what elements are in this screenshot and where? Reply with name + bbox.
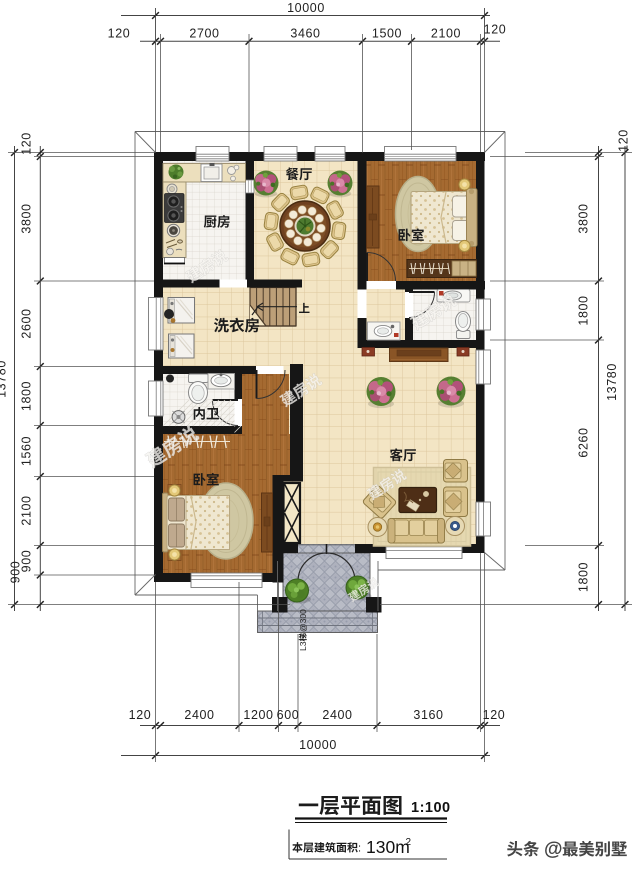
svg-text:120: 120: [484, 23, 507, 37]
svg-text:13780: 13780: [0, 360, 9, 398]
svg-text:2700: 2700: [189, 27, 219, 41]
svg-text:2100: 2100: [20, 495, 34, 525]
svg-text:120: 120: [20, 132, 34, 155]
svg-text:3160: 3160: [413, 708, 443, 722]
svg-text:120: 120: [617, 129, 631, 152]
svg-text:@: @: [544, 839, 563, 860]
svg-text:1800: 1800: [20, 381, 34, 411]
svg-text:1500: 1500: [372, 27, 402, 41]
svg-text:1800: 1800: [577, 295, 591, 325]
svg-text:1800: 1800: [577, 562, 591, 592]
svg-text:3800: 3800: [577, 203, 591, 233]
svg-text:900: 900: [9, 561, 23, 584]
svg-text:2100: 2100: [431, 27, 461, 41]
svg-text:10000: 10000: [299, 738, 337, 752]
svg-text:2: 2: [406, 837, 412, 848]
svg-text:2400: 2400: [322, 708, 352, 722]
svg-text:120: 120: [129, 708, 152, 722]
svg-text:10000: 10000: [287, 1, 325, 15]
svg-text:1200: 1200: [243, 708, 273, 722]
svg-text:120: 120: [108, 27, 131, 41]
svg-text::: :: [358, 843, 361, 855]
svg-text:@300: @300: [298, 609, 308, 632]
svg-text:120: 120: [483, 708, 506, 722]
svg-text:130m: 130m: [366, 837, 410, 857]
svg-text:1:100: 1:100: [411, 800, 451, 816]
svg-text:2600: 2600: [20, 308, 34, 338]
svg-text:2400: 2400: [184, 708, 214, 722]
svg-text:13780: 13780: [605, 363, 619, 401]
svg-text:3800: 3800: [20, 203, 34, 233]
svg-text:600: 600: [277, 708, 300, 722]
svg-text:3460: 3460: [290, 27, 320, 41]
svg-text:1560: 1560: [20, 436, 34, 466]
svg-text:L3: L3: [298, 641, 308, 651]
svg-text:6260: 6260: [577, 427, 591, 457]
